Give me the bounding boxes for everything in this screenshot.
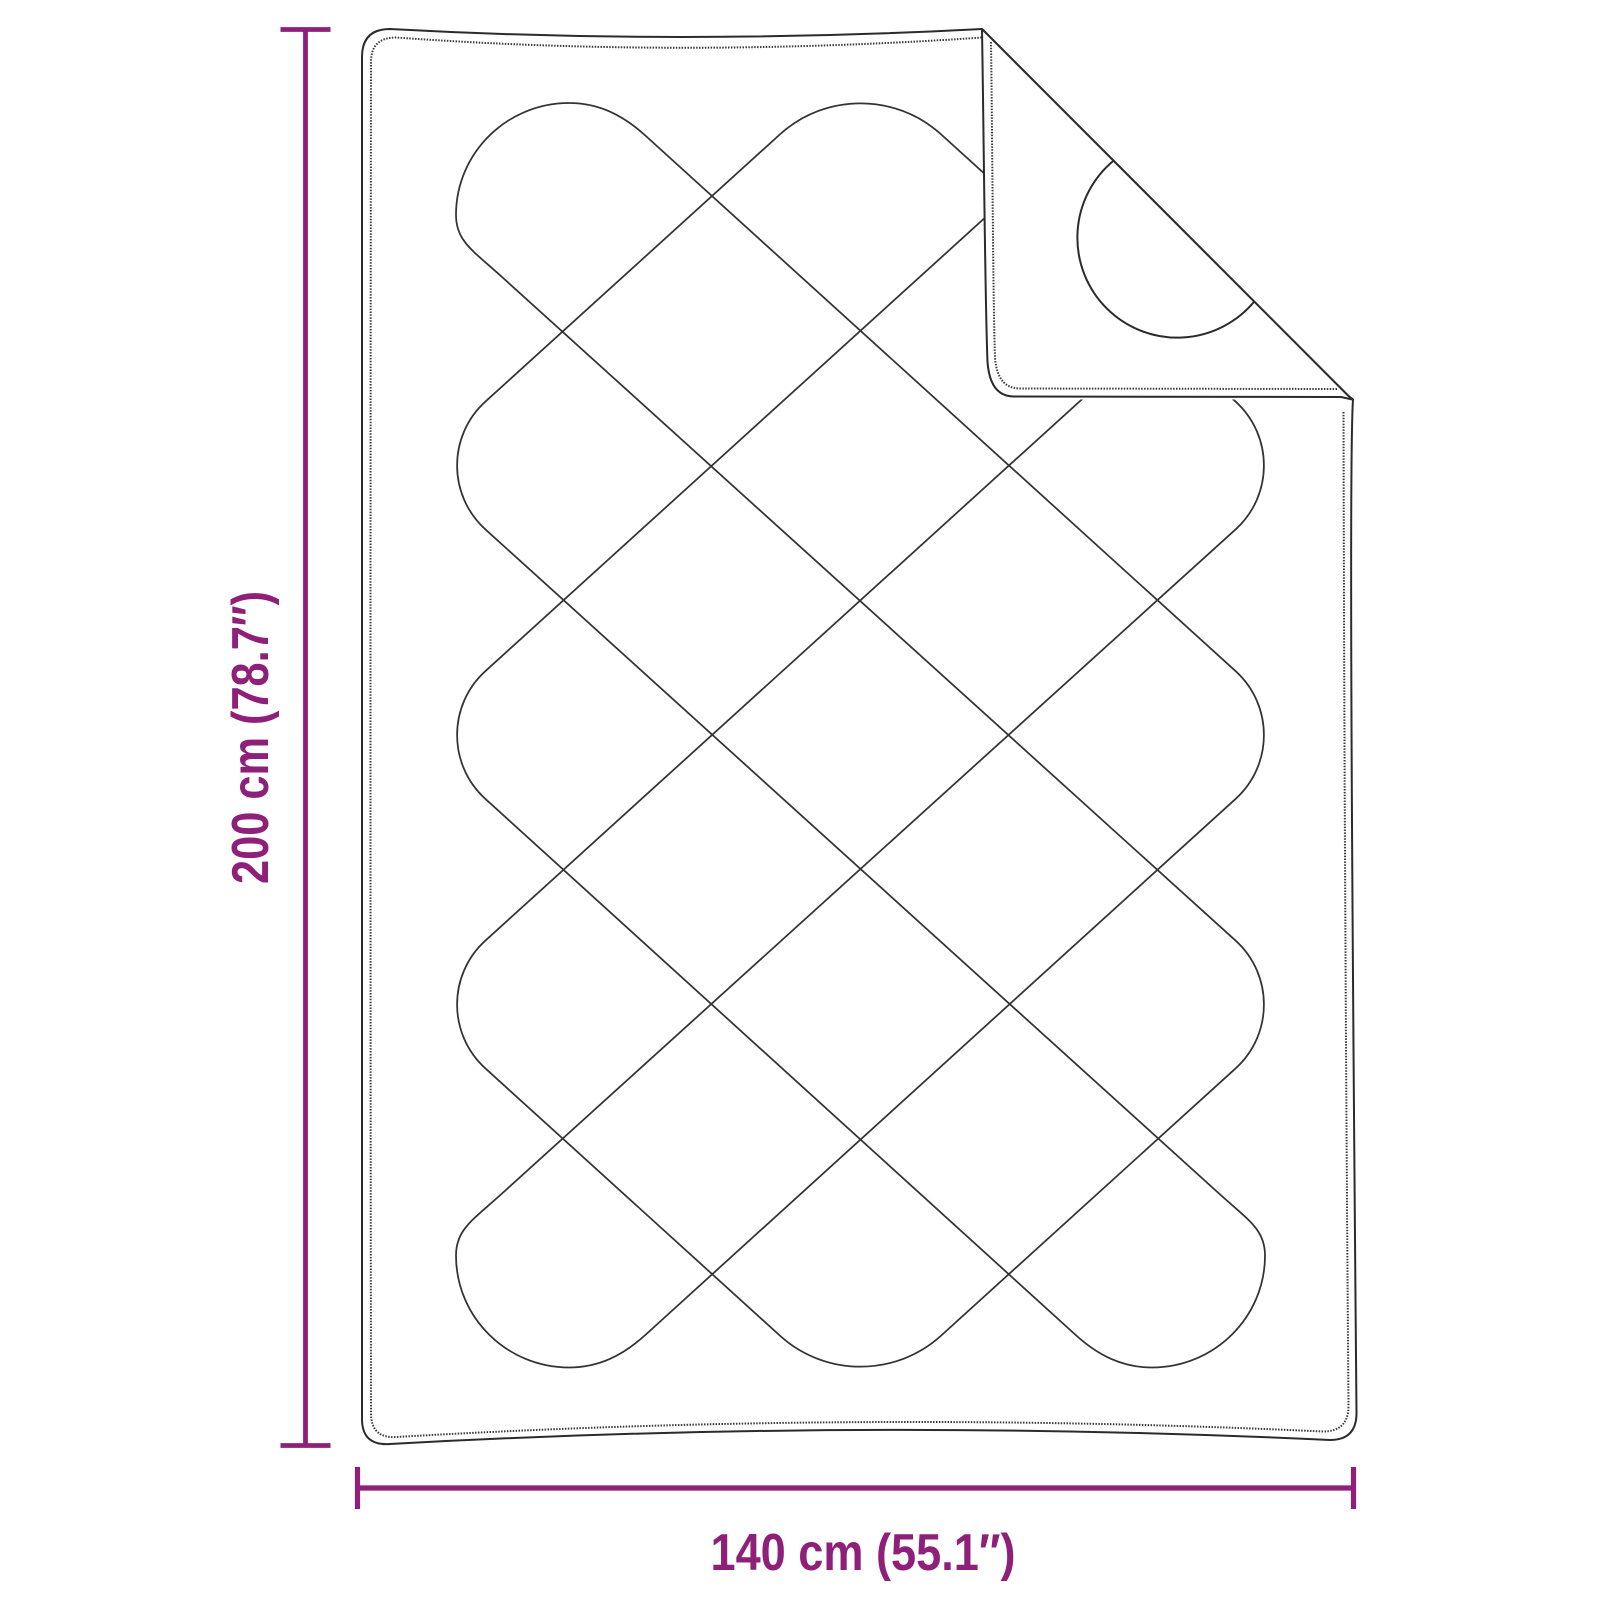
svg-text:140 cm (55.1″): 140 cm (55.1″) <box>711 1524 1016 1582</box>
svg-text:200 cm (78.7″): 200 cm (78.7″) <box>222 591 280 884</box>
